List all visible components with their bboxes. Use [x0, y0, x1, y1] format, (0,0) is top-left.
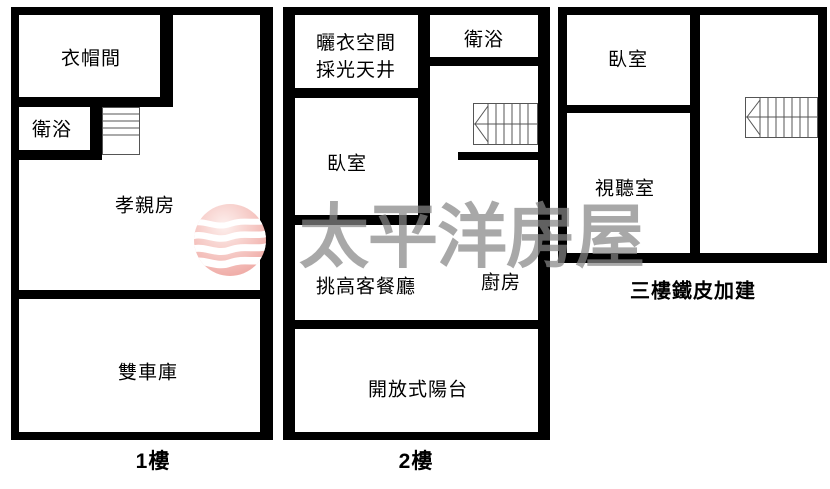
stairs-icon — [102, 107, 140, 155]
floor1-garage-divider-wall — [11, 290, 273, 299]
floor3-center-vertical-wall — [690, 15, 700, 253]
room-label-parents-room: 孝親房 — [115, 191, 175, 218]
watermark-brand-text: 太平洋房屋 — [299, 203, 644, 275]
floor1-caption: 1樓 — [136, 445, 171, 475]
floor1-closet-bottom-wall — [11, 97, 173, 107]
room-label-bath-f2: 衛浴 — [464, 25, 504, 52]
room-label-laundry-line1: 曬衣空間 — [316, 30, 396, 57]
room-label-bedroom-f2: 臥室 — [327, 149, 367, 176]
floor2-laundry-bottom-wall — [295, 88, 430, 98]
room-label-balcony: 開放式陽台 — [368, 375, 468, 402]
floor-plan: 衣帽間 衛浴 孝親房 雙車庫 1樓 曬衣空間 採光天井 衛浴 臥室 挑高客餐廳 … — [0, 0, 830, 489]
floor2-stair-landing-wall — [458, 152, 538, 160]
floor1-bath-bottom-wall — [11, 150, 102, 160]
floor3-bedroom-bottom-wall — [567, 105, 690, 113]
room-label-garage: 雙車庫 — [118, 358, 178, 385]
room-label-bedroom-f3: 臥室 — [608, 45, 648, 72]
stairs-icon — [745, 97, 818, 138]
floor2-caption: 2樓 — [399, 445, 434, 475]
stairs-icon — [473, 103, 538, 145]
room-label-av-room: 視聽室 — [595, 174, 655, 201]
floor2-center-vertical-wall — [418, 15, 430, 225]
room-label-laundry-line2: 採光天井 — [316, 57, 396, 84]
pacific-house-logo-icon — [192, 202, 268, 283]
floor2-bath-bottom-wall — [430, 57, 538, 66]
room-label-laundry-skylight: 曬衣空間 採光天井 — [316, 30, 396, 84]
room-label-bath-f1: 衛浴 — [32, 115, 72, 142]
floor3-caption: 三樓鐵皮加建 — [630, 275, 756, 304]
room-label-closet: 衣帽間 — [61, 44, 121, 71]
floor1-closet-right-wall — [160, 7, 173, 107]
floor2-balcony-top-wall — [283, 320, 550, 329]
